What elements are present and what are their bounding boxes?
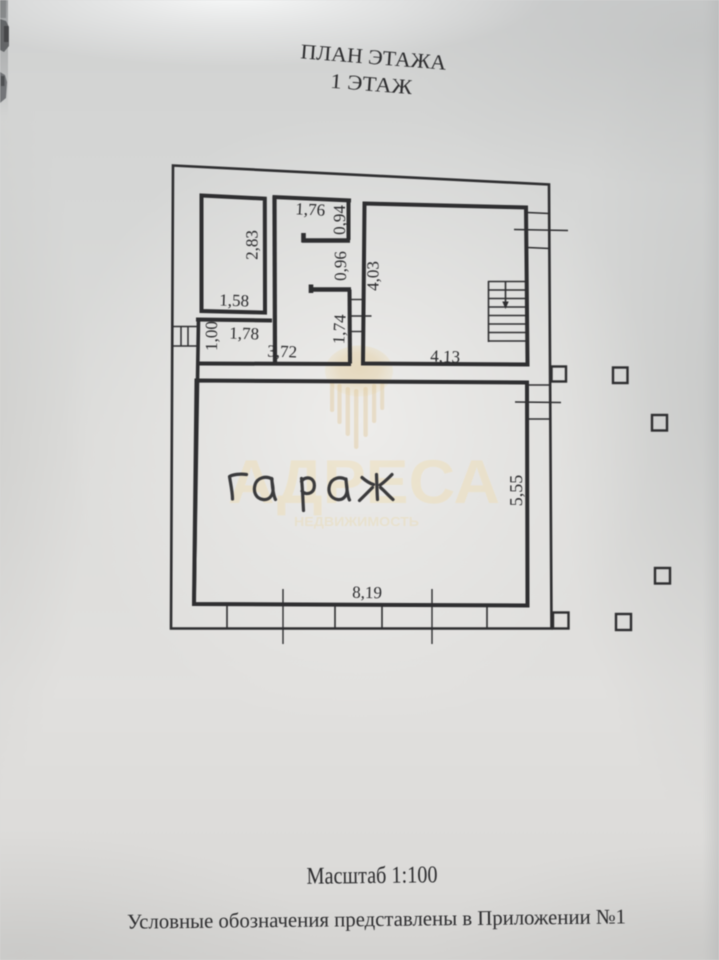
svg-text:3,72: 3,72 <box>267 341 297 361</box>
svg-text:1,74: 1,74 <box>329 313 350 344</box>
svg-text:4,03: 4,03 <box>364 261 383 291</box>
svg-text:АДРЕСА: АДРЕСА <box>228 448 500 517</box>
svg-text:1,76: 1,76 <box>295 199 326 220</box>
svg-text:1,58: 1,58 <box>219 290 249 310</box>
svg-text:8,19: 8,19 <box>352 583 382 603</box>
svg-text:Масштаб 1:100: Масштаб 1:100 <box>306 862 437 890</box>
svg-text:5,55: 5,55 <box>506 475 526 507</box>
svg-text:2,83: 2,83 <box>243 230 262 260</box>
svg-text:0,96: 0,96 <box>331 251 350 281</box>
svg-text:1,00: 1,00 <box>202 321 221 351</box>
svg-text:НЕДВИЖИМОСТЬ: НЕДВИЖИМОСТЬ <box>294 514 419 529</box>
svg-text:0,94: 0,94 <box>330 205 349 235</box>
svg-text:1,78: 1,78 <box>229 323 259 343</box>
svg-text:4,13: 4,13 <box>430 346 460 366</box>
